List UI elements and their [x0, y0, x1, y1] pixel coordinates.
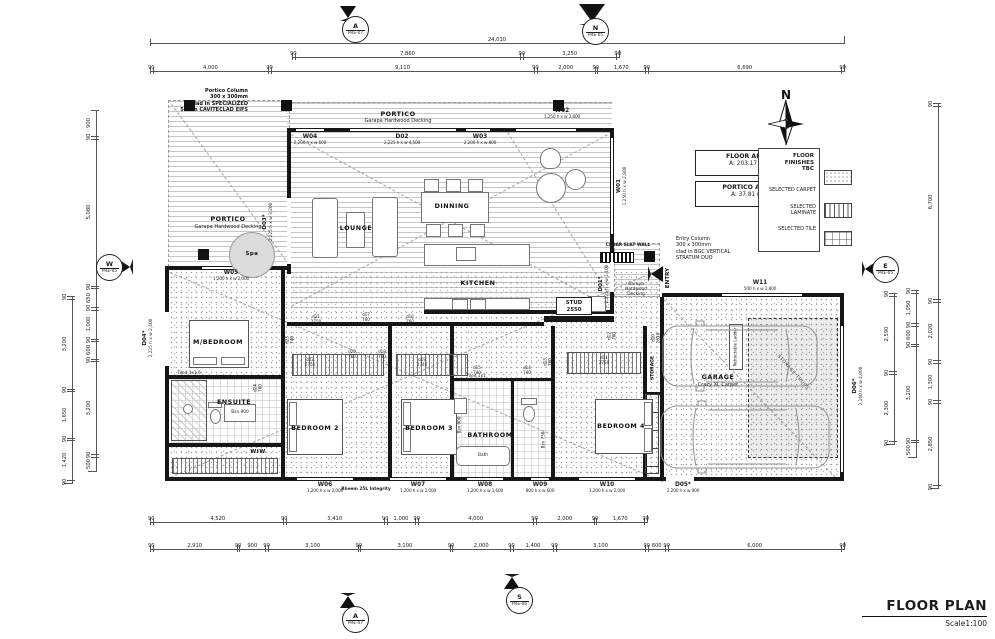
door-d06-opening — [840, 326, 844, 472]
dining-chair — [426, 224, 441, 237]
dim-row-top-2: 907,860903,25090 — [292, 50, 620, 58]
wall-cedar-slat — [600, 252, 634, 263]
dining-chair — [446, 179, 461, 192]
door-d02-opening — [350, 128, 456, 132]
drawing-scale: Scale1:100 — [862, 619, 987, 628]
swatch-tile — [824, 231, 852, 246]
door-tag-d01: D01*2,225 h x w 1,100 — [598, 265, 610, 304]
section-marker-n-top: NPRE-05 — [582, 4, 609, 45]
door-tag-d03: D03*2,225 h x w 3,200 — [262, 203, 274, 242]
door-tag-d20: d20 760 — [348, 350, 356, 359]
room-label-bedroom2: BEDROOM 2 — [291, 424, 339, 432]
door-tag-d02: D022,225 h x w 4,500 — [384, 134, 420, 146]
room-label-portico-top: PORTICO — [380, 110, 415, 118]
label-tiled-1x16: Tiled 1x1.6 — [177, 371, 201, 376]
window-w09 — [531, 477, 549, 481]
finishes-title: FLOOR FINISHES — [764, 153, 814, 166]
note-rheem: Rheem 25L Integrity — [341, 487, 391, 492]
window-w07 — [390, 477, 446, 481]
room-label-storage: STORAGE — [651, 356, 656, 380]
room-label-bedroom4: BEDROOM 4 — [597, 422, 645, 430]
wall-bed2-bed3 — [388, 326, 392, 481]
window-w03 — [466, 128, 490, 132]
entry-label: ENTRY — [665, 268, 671, 288]
window-tag-w02: W021,250 h x w 2,800 — [544, 108, 580, 120]
door-d03-opening — [287, 198, 291, 264]
room-label-ensuite: ENSUITE — [217, 398, 251, 406]
section-marker-s-bottom: SPRE-06 — [506, 578, 533, 614]
pillow — [644, 402, 652, 426]
window-tag-w07: W071,200 h x w 2,000 — [400, 482, 436, 494]
wall-left — [165, 266, 169, 481]
note-portico-column: Portico Column 300 x 300mm clad in SPECI… — [108, 88, 248, 113]
stud-height-box: STUD 2550 — [556, 297, 592, 315]
deck-chair — [540, 148, 561, 169]
finishes-tile-label: SELECTED TILE — [764, 226, 816, 232]
label-bsn750: Bsn 750 — [542, 432, 547, 449]
sofa-2 — [372, 197, 398, 257]
entry-arrow-icon — [648, 266, 663, 282]
room-label-bedroom3: BEDROOM 3 — [405, 424, 453, 432]
kitchen-sink — [456, 247, 476, 261]
door-d04-opening — [165, 312, 169, 366]
door-tag-d10: d10 2616 — [651, 333, 660, 343]
window-tag-w08: W081,200 h x w 1,600 — [467, 482, 503, 494]
bath-basin — [454, 398, 467, 414]
door-tag-d15: d15 740 — [473, 366, 481, 375]
room-label-lounge: LOUNGE — [340, 224, 372, 232]
dim-col-left-outer: 903,200901,650901,42090 — [64, 296, 73, 484]
dining-chair — [424, 179, 439, 192]
wall-ensuite-bottom — [169, 443, 283, 447]
dining-chair — [470, 224, 485, 237]
door-tag-d18: d18 760 — [378, 350, 386, 359]
title-block: FLOOR PLAN Scale1:100 — [862, 598, 987, 628]
robe-wiw — [172, 458, 278, 474]
door-d01-opening — [610, 262, 614, 292]
svg-text:N: N — [781, 88, 791, 102]
pillow — [289, 402, 297, 426]
room-label-wiw: WIW — [250, 449, 265, 455]
ensuite-basin-label: Bsn 900 — [231, 410, 248, 415]
window-tag-w06: W061,200 h x w 2,000 — [307, 482, 343, 494]
shower-head — [183, 404, 193, 414]
dim-row-overall: 24,010 — [150, 36, 845, 44]
wc-toilet — [523, 406, 535, 422]
spa-label: Spa — [246, 251, 259, 257]
door-tag-d19: d19 2740 — [417, 358, 427, 367]
door-tag-d04: D04*2,225 h x w 2,400 — [142, 319, 154, 358]
room-sublabel-portico-left: Garapa Hardwood Decking — [194, 224, 261, 230]
dim-col-left-inner: 900905,08090650901,00090600903,20090500 — [88, 110, 97, 472]
dim-row-bottom-2: 902,91090900903,100903,100902,000901,400… — [150, 542, 845, 550]
door-tag-d05: D05*2,200 h x w 900 — [667, 482, 700, 494]
bathtub-label: Bath — [478, 453, 488, 458]
door-tag-d13: d13 760 — [543, 358, 552, 366]
room-label-mbedroom: M/BEDROOM — [193, 338, 243, 346]
door-tag-d21: d21 2750 — [311, 315, 321, 324]
window-w01 — [610, 138, 614, 234]
room-label-garage: GARAGE — [702, 373, 735, 381]
door-tag-d11: d11 2750 — [599, 356, 609, 365]
window-tag-w01: W011,250 h x w 2,800 — [616, 167, 628, 206]
kitchen-island — [424, 244, 530, 266]
pillow — [193, 357, 217, 365]
floor-finishes-legend: FLOOR FINISHES TBC SELECTED CARPET SELEC… — [758, 148, 820, 252]
door-tag-d12: d12 760 — [607, 332, 616, 340]
window-w06 — [297, 477, 353, 481]
dim-col-right-mid: 901,05090600903,20090500 — [908, 290, 917, 458]
finishes-carpet-label: SELECTED CARPET — [764, 187, 816, 193]
ensuite-toilet — [210, 409, 221, 424]
wc-cistern — [521, 398, 537, 405]
window-tag-w10: W101,200 h x w 2,000 — [589, 482, 625, 494]
dining-chair — [448, 224, 463, 237]
section-marker-a-top: APRE-07 — [342, 6, 369, 43]
pillow — [403, 402, 411, 426]
room-label-bathroom: BATHROOM — [467, 431, 512, 439]
deck-round-table — [536, 173, 566, 203]
floor-plan-sheet: 24,010 907,860903,25090 904,000909,11090… — [0, 0, 995, 639]
room-label-dining: DINNING — [435, 202, 470, 210]
finishes-laminate-label: SELECTED LAMINATE — [764, 204, 816, 216]
window-tag-w11: W11500 h x w 2,800 — [744, 280, 777, 292]
portico-column-2 — [281, 100, 292, 111]
kitchen-appliance — [470, 299, 486, 310]
room-sublabel-portico-top: Garapa Hardwood Decking — [364, 118, 431, 124]
car-2 — [658, 398, 832, 476]
sofa-1 — [312, 198, 338, 258]
door-tag-d24: d24 760 — [253, 384, 262, 392]
door-tag-d16: d16 760 — [406, 315, 414, 324]
door-tag-d06: D06*2,160 h x w 4,800 — [852, 367, 864, 406]
pillow — [644, 428, 652, 452]
deck-chair — [565, 169, 586, 190]
dim-col-right-inner: 902,590902,30090 — [886, 293, 895, 445]
entry-column — [644, 251, 655, 262]
window-tag-w04: W042,200 h x w 600 — [294, 134, 327, 146]
door-tag-d22: d22 2750 — [305, 358, 315, 367]
window-w02 — [516, 128, 576, 132]
label-bsn900-bath: Bsn 900 — [458, 417, 463, 434]
car-1 — [660, 318, 820, 394]
door-tag-d23: d23 740 — [285, 336, 294, 344]
dim-col-right-outer: 906,700902,020901,300902,85090 — [930, 103, 939, 489]
room-sublabel-garage: Crazy XL Carpet — [698, 382, 738, 388]
note-entry-deck: Garapa Hardwood Decking — [625, 282, 647, 297]
section-marker-e-right: EPRE-05 — [872, 256, 899, 283]
swatch-carpet — [824, 170, 852, 185]
door-tag-d17: d17 760 — [362, 313, 370, 322]
portico-column-4 — [198, 249, 209, 260]
door-tag-d14: d14 740 — [523, 366, 531, 375]
window-tag-w05: W051,200 h x w 2,000 — [213, 270, 249, 282]
window-w11 — [722, 293, 802, 297]
north-compass-icon: N — [764, 88, 808, 146]
window-w10 — [579, 477, 635, 481]
window-tag-w03: W032,200 h x w 800 — [464, 134, 497, 146]
wall-wc-bed4 — [551, 326, 555, 481]
wall-stud — [544, 316, 614, 322]
swatch-laminate — [824, 203, 852, 218]
window-tag-w09: W09800 h x w 600 — [526, 482, 555, 494]
section-marker-a-bottom: APRE-07 — [342, 597, 369, 633]
section-marker-w-left: WPRE-05 — [96, 254, 123, 281]
wall-mbed-right — [281, 266, 285, 481]
pillow — [221, 357, 245, 365]
window-w08 — [467, 477, 503, 481]
dining-chair — [468, 179, 483, 192]
window-w04 — [296, 128, 324, 132]
finishes-status: TBC — [764, 166, 814, 173]
kitchen-appliance — [452, 299, 468, 310]
note-cedar-slat-wall: CEDAR SLAT WALL — [606, 243, 650, 248]
room-label-portico-left: PORTICO — [210, 215, 245, 223]
door-d05-opening — [666, 477, 694, 481]
wall-corridor — [287, 322, 544, 326]
drawing-title: FLOOR PLAN — [862, 598, 987, 617]
room-label-kitchen: KITCHEN — [461, 279, 496, 287]
robe-bed3 — [396, 354, 468, 376]
dim-row-bottom-1: 904,520903,410901,000904,000902,000901,6… — [150, 515, 648, 523]
dim-row-top-3: 904,000909,110902,000901,670906,69090 — [150, 64, 845, 72]
